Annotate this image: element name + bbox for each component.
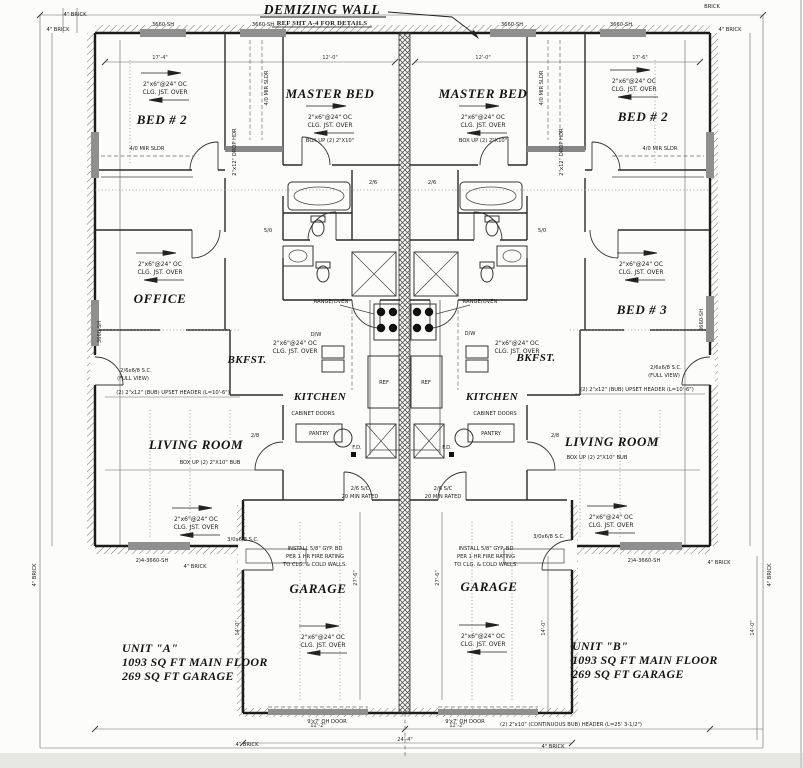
unit-a-garage: 269 SQ FT GARAGE: [121, 669, 234, 683]
window-label: 3660-SH: [252, 22, 274, 28]
note-upset-header-a: (2) 2"x12" (BUB) UPSET HEADER (L=10'-6"): [116, 390, 229, 396]
brick-label: 4" BRICK: [183, 564, 207, 570]
note-scfull-a1: 2/6x6/8 S.C.: [120, 368, 152, 374]
note-fire-a3: TO CLG. & COLD WALLS.: [282, 562, 347, 568]
note-scfull-b2: (FULL VIEW): [648, 373, 680, 379]
brick-label: 4" BRICK: [46, 27, 70, 33]
note-fire-b2: PER 1 HR FIRE RATING: [457, 554, 515, 560]
note-fire-b3: TO CLG. & COLD WALLS.: [453, 562, 518, 568]
note-ref-b: REF: [421, 380, 431, 386]
svg-text:2"x6"@24" OC: 2"x6"@24" OC: [495, 340, 539, 347]
note-box-up-b: BOX UP (2) 2"X10": [459, 138, 507, 144]
room-label-bed2-b: BED # 2: [617, 109, 668, 124]
note-mir-sldr-bed2a: 4/0 MIR SLDR: [129, 146, 164, 152]
note-range-oven-a: RANGE/OVEN: [314, 299, 349, 305]
room-label-kitchen-a: KITCHEN: [293, 391, 347, 403]
unit-b-garage: 269 SQ FT GARAGE: [571, 667, 684, 681]
door-size-28-a: 2/8: [251, 433, 259, 439]
room-label-living-a: LIVING ROOM: [148, 437, 243, 452]
window-label: 3660-SH: [97, 321, 103, 343]
svg-text:2"x6"@24" OC: 2"x6"@24" OC: [589, 514, 633, 521]
note-range-oven-b: RANGE/OVEN: [463, 299, 498, 305]
note-scdoor-b: 3/0x6/8 S.C.: [533, 534, 565, 540]
demising-wall-title: DEMIZING WALL: [263, 2, 380, 17]
svg-text:CLG. JST. OVER: CLG. JST. OVER: [588, 522, 633, 529]
note-drop-hdr-b: 2"x12" DROP HDR: [559, 128, 565, 176]
svg-text:2"x6"@24" OC: 2"x6"@24" OC: [273, 340, 317, 347]
note-dw-a: D/W: [311, 332, 322, 338]
room-label-kitchen-b: KITCHEN: [465, 391, 519, 403]
dim-yard-depth: 14'-0": [235, 620, 241, 636]
dim-yard-depth: 14'-0": [750, 620, 756, 636]
note-rated-a2: 20 MIN RATED: [342, 494, 379, 500]
note-scfull-a2: (FULL VIEW): [117, 376, 149, 382]
note-dw-b: D/W: [465, 331, 476, 337]
svg-text:2"x6"@24" OC: 2"x6"@24" OC: [308, 114, 352, 121]
brick-label: 4" BRICK: [63, 12, 87, 18]
note-mir-sldr-master-a: 4/0 MIR SLDR: [264, 70, 270, 105]
dim-master-width: 12'-0": [322, 55, 338, 61]
brick-label-short: BRICK: [704, 4, 720, 10]
door-size-26-b: 2/6: [428, 180, 436, 186]
note-fd-a: F.D.: [352, 445, 362, 451]
window-label: 3660-SH: [152, 22, 174, 28]
floorplan-svg: DEMIZING WALL REF SHT A-4 FOR DETAILS MA…: [0, 0, 803, 768]
note-scdoor-a: 3/0x6/8 S.C.: [227, 537, 259, 543]
svg-text:CLG. JST. OVER: CLG. JST. OVER: [460, 641, 505, 648]
svg-text:CLG. JST. OVER: CLG. JST. OVER: [300, 642, 345, 649]
note-mir-sldr-bed2b: 4/0 MIR SLDR: [642, 146, 677, 152]
window-label: 3660-SH: [501, 22, 523, 28]
demising-wall-ref: REF SHT A-4 FOR DETAILS: [277, 20, 368, 27]
brick-label: 4" BRICK: [718, 27, 742, 33]
dim-master-width: 12'-0": [475, 55, 491, 61]
svg-text:CLG. JST. OVER: CLG. JST. OVER: [137, 269, 182, 276]
svg-text:2"x6"@24" OC: 2"x6"@24" OC: [143, 81, 187, 88]
dim-garage-depth: 27'-6": [435, 570, 441, 586]
brick-label: 4" BRICK: [707, 560, 731, 566]
note-continuous-header: (2) 2"x10" (CONTINUOUS BUB) HEADER (L=25…: [500, 722, 642, 728]
dim-garage-depth: 27'-6": [353, 570, 359, 586]
note-box-up-bub-a: BOX UP (2) 2"X10" BUB: [180, 460, 241, 466]
note-upset-header-b: (2) 2"x12" (BUB) UPSET HEADER (L=10'-6"): [580, 387, 693, 393]
note-rated-b1: 2/6 S/C: [434, 486, 453, 492]
brick-label: 4" BRICK: [767, 563, 773, 587]
room-label-master-b: MASTER BED: [438, 86, 528, 101]
door-size-50-b: 5/0: [538, 228, 546, 234]
note-ref-a: REF: [379, 380, 389, 386]
dim-oh-span-a: 12'-2": [310, 723, 326, 729]
note-box-up-a: BOX UP (2) 2"X10": [306, 138, 354, 144]
svg-text:CLG. JST. OVER: CLG. JST. OVER: [611, 86, 656, 93]
svg-text:2"x6"@24" OC: 2"x6"@24" OC: [138, 261, 182, 268]
svg-text:2"x6"@24" OC: 2"x6"@24" OC: [612, 78, 656, 85]
note-rated-a1: 2/6 S/C: [351, 486, 370, 492]
svg-text:2"x6"@24" OC: 2"x6"@24" OC: [301, 634, 345, 641]
room-label-bkfst-a: BKFST.: [227, 354, 267, 366]
dim-yard-depth: 14'-0": [541, 620, 547, 636]
note-box-up-bub-b: BOX UP (2) 2"X10" BUB: [567, 455, 628, 461]
room-label-master-a: MASTER BED: [285, 86, 375, 101]
svg-text:2"x6"@24" OC: 2"x6"@24" OC: [174, 516, 218, 523]
brick-label: 4" BRICK: [541, 744, 565, 750]
svg-text:2"x6"@24" OC: 2"x6"@24" OC: [619, 261, 663, 268]
room-label-garage-a: GARAGE: [289, 581, 346, 596]
svg-text:CLG. JST. OVER: CLG. JST. OVER: [494, 348, 539, 355]
brick-label: 4" BRICK: [32, 563, 38, 587]
note-drop-hdr-a: 2"x12" DROP HDR: [232, 128, 238, 176]
unit-a-mainfloor: 1093 SQ FT MAIN FLOOR: [122, 655, 268, 669]
dim-garage-front: 24'-4": [397, 737, 413, 743]
note-scfull-b1: 2/6x6/8 S.C.: [650, 365, 682, 371]
clg-jst-note: 2"x6"@24" OCCLG. JST. OVER: [494, 340, 539, 355]
unit-b-name: UNIT "B": [572, 639, 628, 653]
note-fd-b: F.D.: [442, 445, 452, 451]
svg-text:CLG. JST. OVER: CLG. JST. OVER: [173, 524, 218, 531]
svg-text:CLG. JST. OVER: CLG. JST. OVER: [307, 122, 352, 129]
note-pantry-b: PANTRY: [481, 431, 502, 437]
svg-text:2"x6"@24" OC: 2"x6"@24" OC: [461, 633, 505, 640]
door-size-28-b: 2/8: [551, 433, 559, 439]
door-size-26-a: 2/6: [369, 180, 377, 186]
note-fire-a1: INSTALL 5/8" GYP. BD: [288, 546, 343, 552]
note-fire-b1: INSTALL 5/8" GYP. BD: [459, 546, 514, 552]
svg-text:CLG. JST. OVER: CLG. JST. OVER: [272, 348, 317, 355]
room-label-garage-b: GARAGE: [460, 579, 517, 594]
room-label-living-b: LIVING ROOM: [564, 434, 659, 449]
door-size-50-a: 5/0: [264, 228, 272, 234]
brick-label: 4" BRICK: [235, 742, 259, 748]
window-label-double: 2)4-3660-SH: [136, 558, 169, 564]
note-mir-sldr-master-b: 4/0 MIR SLDR: [539, 70, 545, 105]
room-label-office: OFFICE: [134, 291, 187, 306]
note-rated-b2: 20 MIN RATED: [425, 494, 462, 500]
demising-wall: [399, 33, 410, 713]
clg-jst-note: 2"x6"@24" OCCLG. JST. OVER: [272, 340, 317, 355]
note-fire-a2: PER 1 HR FIRE RATING: [286, 554, 344, 560]
note-pantry-a: PANTRY: [309, 431, 330, 437]
svg-text:2"x6"@24" OC: 2"x6"@24" OC: [461, 114, 505, 121]
window-label: 3660-SH: [699, 309, 705, 331]
unit-a-name: UNIT "A": [122, 641, 178, 655]
dim-oh-span-b: 12'-2": [449, 723, 465, 729]
note-cabinet-doors-a: CABINET DOORS: [291, 411, 334, 417]
svg-text:CLG. JST. OVER: CLG. JST. OVER: [618, 269, 663, 276]
room-label-bed3: BED # 3: [616, 302, 667, 317]
dim-bed2a-width: 17'-4": [152, 55, 168, 61]
floorplan-sheet: DEMIZING WALL REF SHT A-4 FOR DETAILS MA…: [0, 0, 803, 768]
svg-text:CLG. JST. OVER: CLG. JST. OVER: [142, 89, 187, 96]
note-cabinet-doors-b: CABINET DOORS: [473, 411, 516, 417]
dim-bed2b-width: 17'-6": [632, 55, 648, 61]
unit-b-mainfloor: 1093 SQ FT MAIN FLOOR: [572, 653, 718, 667]
room-label-bed2-a: BED # 2: [136, 112, 187, 127]
window-label: 3660-SH: [610, 22, 632, 28]
window-label-double: 2)4-3660-SH: [628, 558, 661, 564]
svg-text:CLG. JST. OVER: CLG. JST. OVER: [460, 122, 505, 129]
